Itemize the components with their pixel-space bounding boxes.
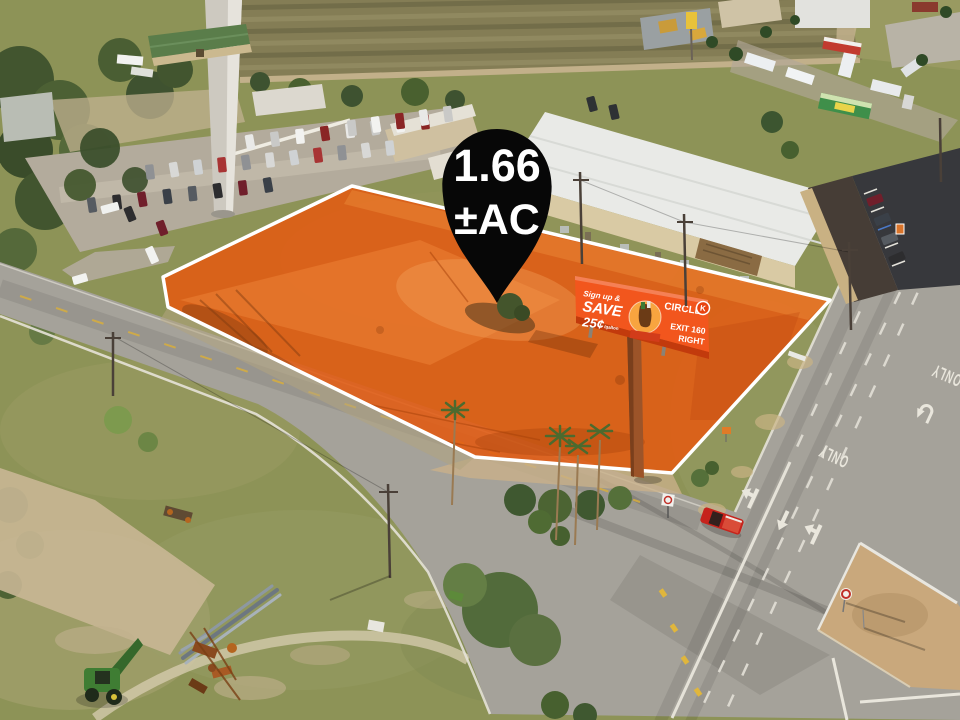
red-roof-shed bbox=[912, 2, 938, 12]
pin-acreage-unit: ±AC bbox=[454, 196, 540, 244]
aerial-scene: ONLY ONLY ONLY bbox=[0, 0, 960, 720]
parked-car bbox=[188, 186, 198, 202]
shed bbox=[0, 92, 56, 142]
parked-car bbox=[265, 152, 275, 168]
small-orange-sign bbox=[722, 427, 731, 434]
pin-acreage-value: 1.66 bbox=[453, 140, 541, 191]
billboard-mascot bbox=[629, 301, 661, 342]
sign-back bbox=[661, 493, 675, 507]
median-sign bbox=[896, 224, 904, 234]
parked-car bbox=[347, 120, 357, 137]
parked-car bbox=[145, 164, 155, 180]
parked-car bbox=[217, 157, 227, 173]
parked-car bbox=[337, 145, 347, 161]
parked-car bbox=[295, 128, 305, 144]
parked-car bbox=[385, 140, 395, 156]
white-shed bbox=[795, 0, 870, 28]
aerial-photo: ONLY ONLY ONLY bbox=[0, 0, 960, 720]
parked-car bbox=[238, 180, 248, 196]
